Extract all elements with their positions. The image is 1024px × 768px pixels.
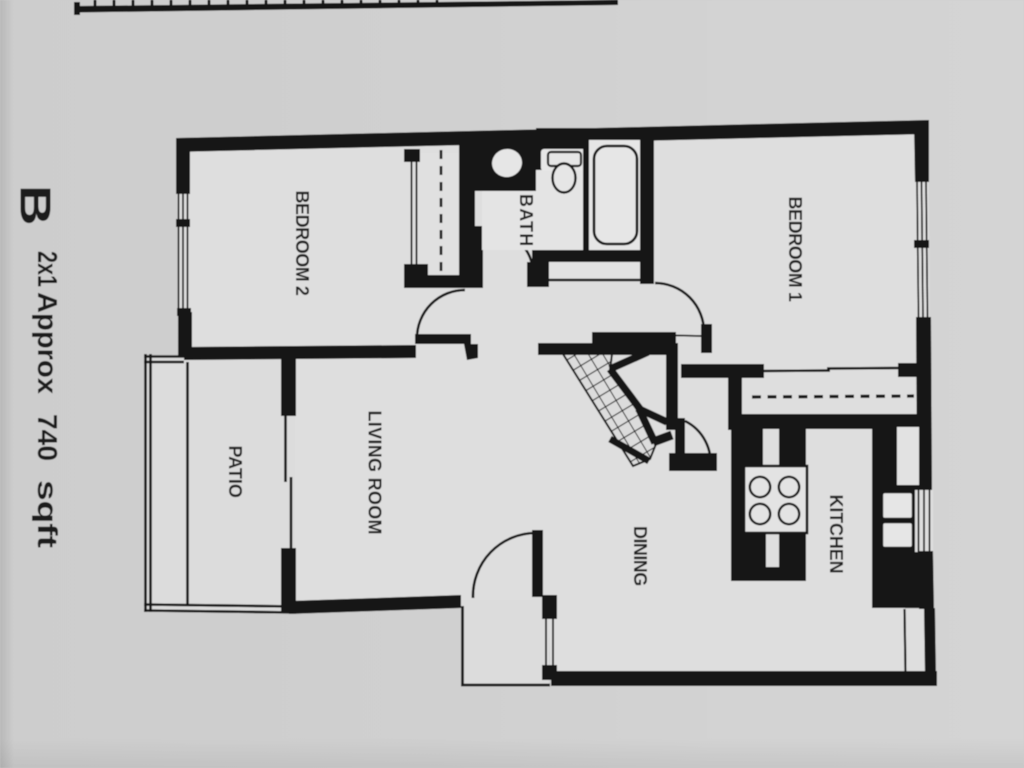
svg-text:LIVING ROOM: LIVING ROOM xyxy=(365,411,385,535)
svg-text:BATH: BATH xyxy=(516,194,536,247)
svg-text:BEDROOM 2: BEDROOM 2 xyxy=(292,191,312,296)
svg-text:KITCHEN: KITCHEN xyxy=(826,495,846,574)
svg-text:BEDROOM 1: BEDROOM 1 xyxy=(785,197,805,302)
svg-text:B: B xyxy=(11,185,61,226)
svg-text:PATIO: PATIO xyxy=(225,446,245,498)
svg-text:DINING: DINING xyxy=(630,526,650,586)
